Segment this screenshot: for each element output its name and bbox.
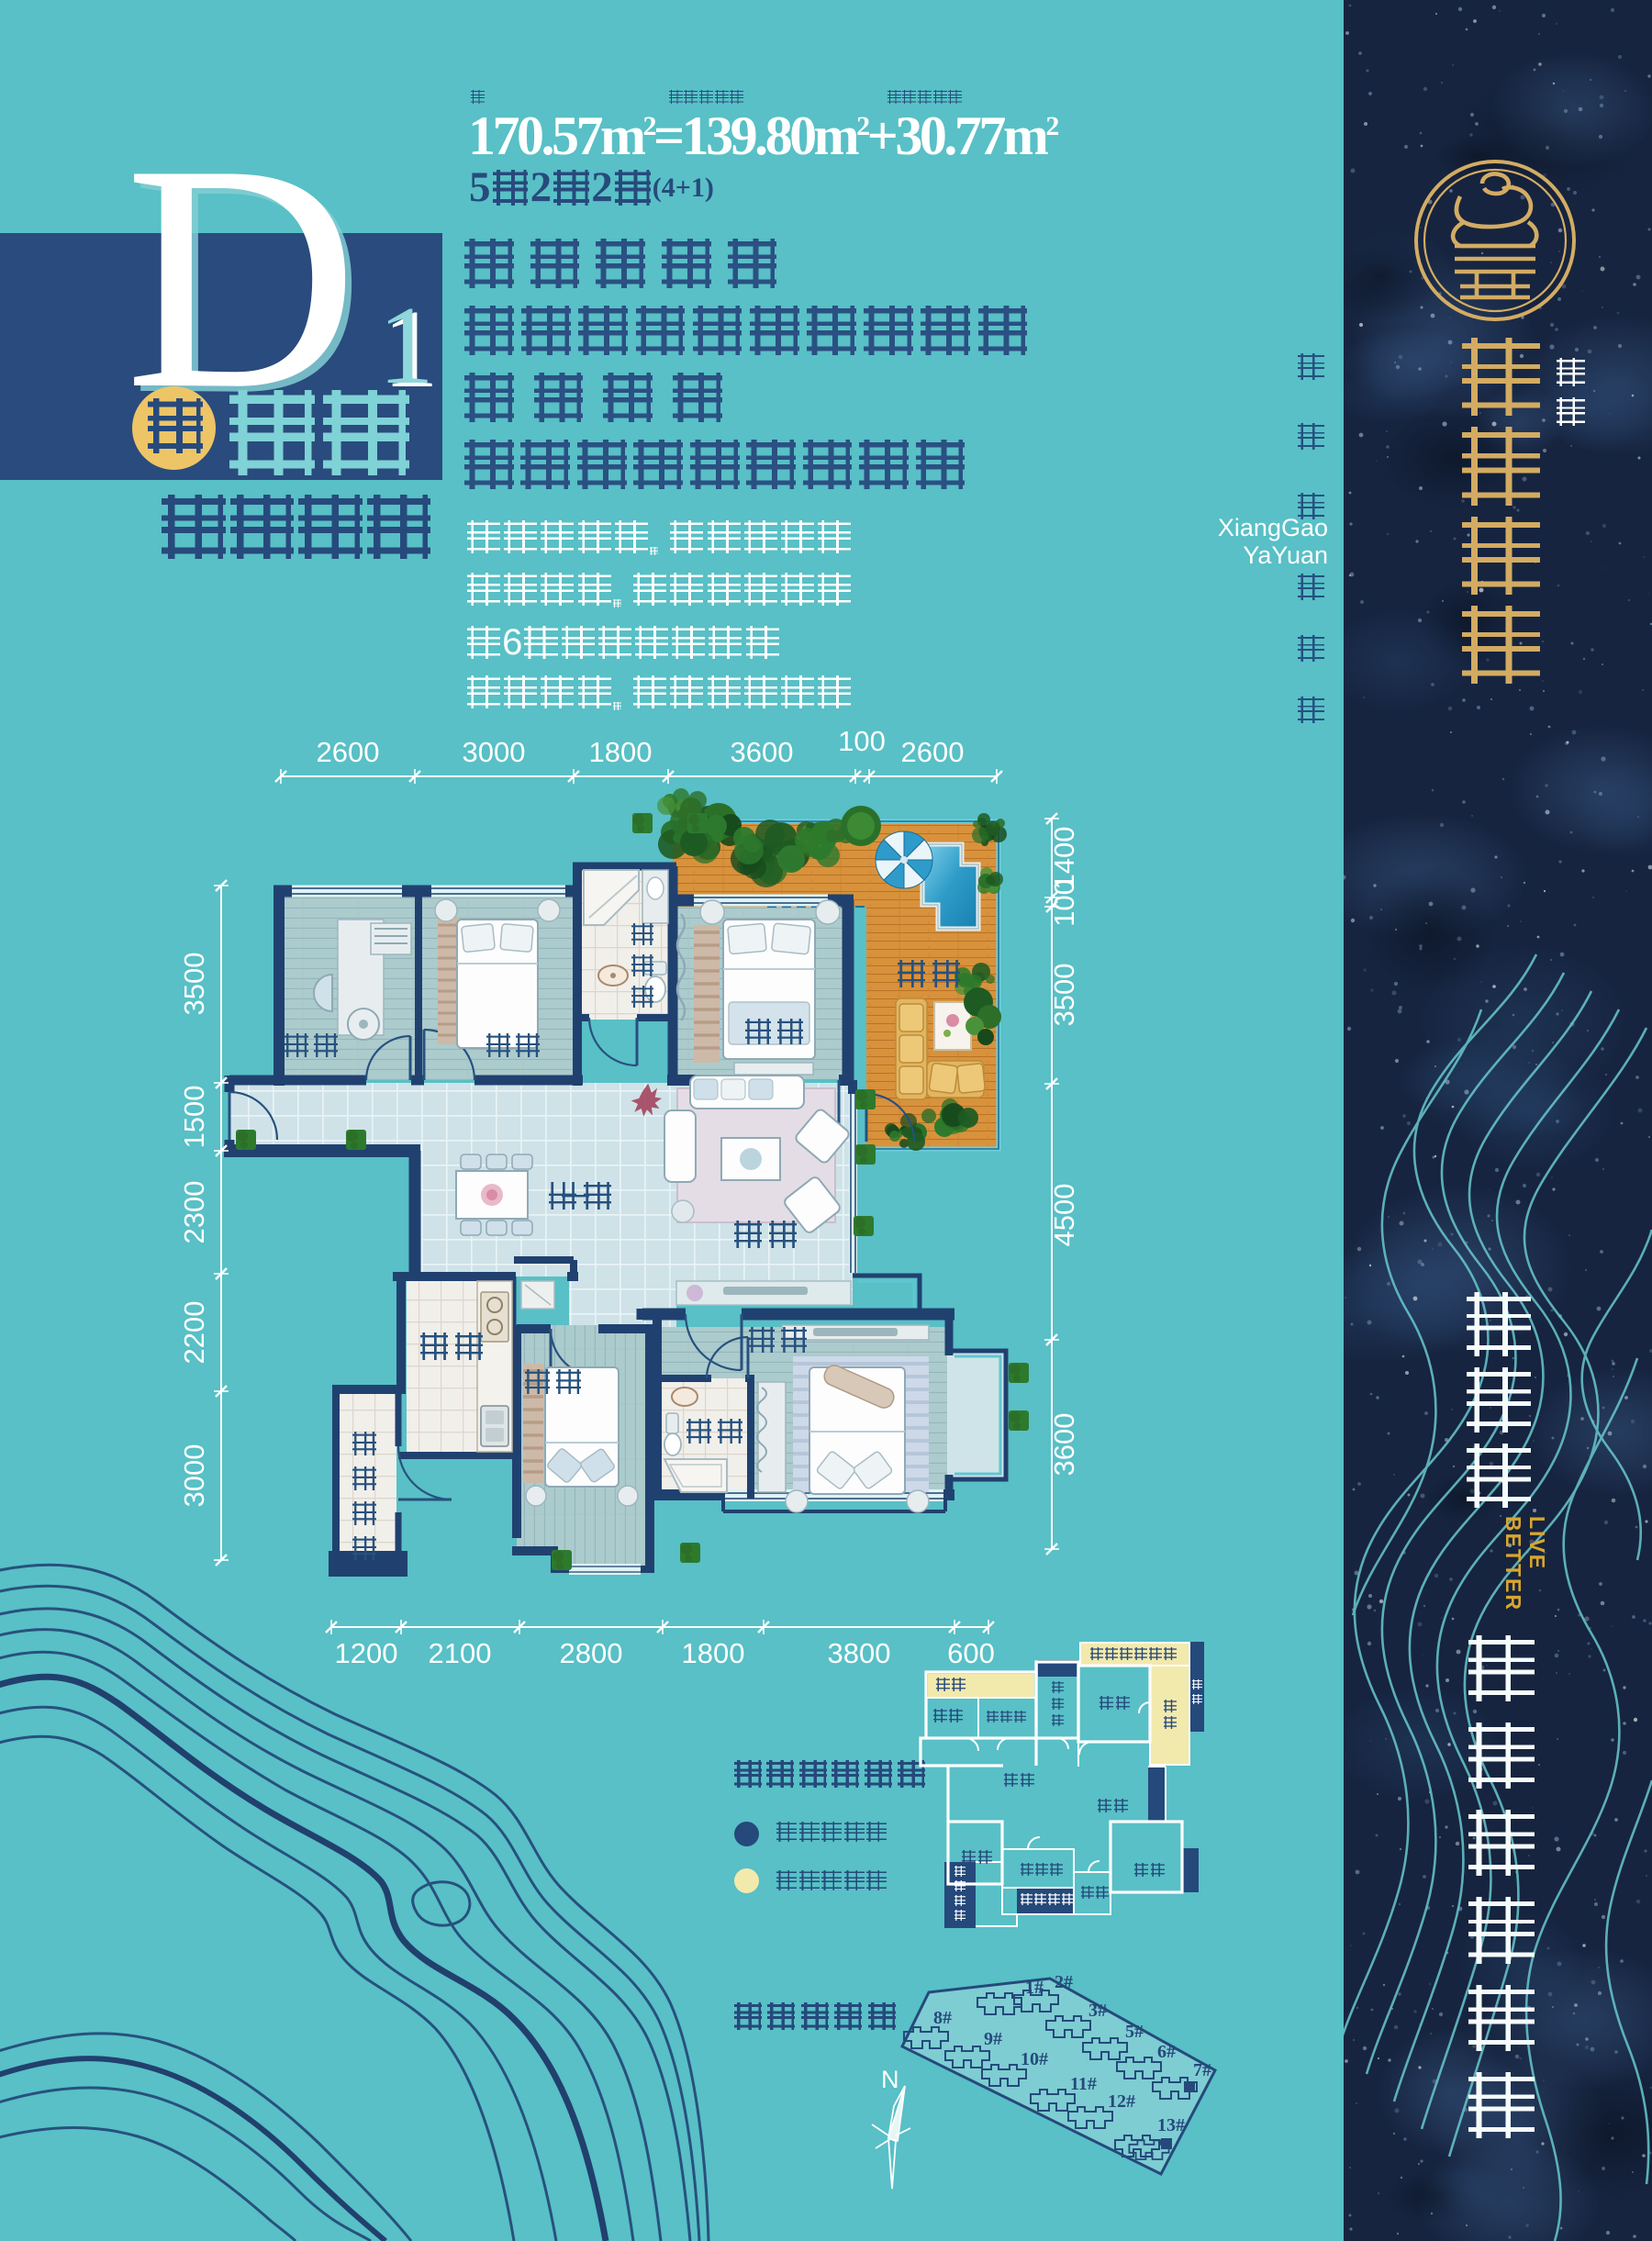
svg-text:2100: 2100 <box>429 1637 492 1669</box>
svg-text:2#: 2# <box>1055 1972 1073 1992</box>
svg-text:10#: 10# <box>1021 2049 1048 2069</box>
svg-text:5#: 5# <box>1125 2022 1144 2042</box>
svg-text:3#: 3# <box>1088 2001 1107 2021</box>
svg-text:8#: 8# <box>933 2008 952 2028</box>
svg-text:1800: 1800 <box>682 1637 745 1669</box>
svg-text:3600: 3600 <box>1048 1413 1080 1477</box>
svg-text:1800: 1800 <box>589 736 653 768</box>
svg-text:3000: 3000 <box>463 736 526 768</box>
svg-text:3000: 3000 <box>178 1444 210 1508</box>
svg-text:13#: 13# <box>1157 2115 1185 2135</box>
svg-text:12#: 12# <box>1108 2091 1135 2112</box>
svg-text:6#: 6# <box>1157 2042 1176 2062</box>
svg-text:2800: 2800 <box>560 1637 623 1669</box>
svg-text:7#: 7# <box>1193 2060 1211 2080</box>
svg-text:3500: 3500 <box>1048 964 1080 1027</box>
svg-text:3800: 3800 <box>828 1637 891 1669</box>
svg-text:1500: 1500 <box>178 1086 210 1149</box>
svg-text:2600: 2600 <box>317 736 380 768</box>
svg-text:2200: 2200 <box>178 1301 210 1365</box>
svg-text:100: 100 <box>838 725 886 757</box>
svg-text:2600: 2600 <box>901 736 965 768</box>
svg-text:1200: 1200 <box>335 1637 398 1669</box>
svg-text:3600: 3600 <box>731 736 794 768</box>
svg-text:3500: 3500 <box>178 953 210 1016</box>
svg-text:4500: 4500 <box>1048 1184 1080 1247</box>
svg-text:9#: 9# <box>984 2029 1002 2049</box>
svg-text:N: N <box>881 2069 899 2093</box>
svg-text:2300: 2300 <box>178 1181 210 1244</box>
svg-text:100: 100 <box>1048 879 1080 927</box>
svg-text:11#: 11# <box>1070 2074 1097 2094</box>
